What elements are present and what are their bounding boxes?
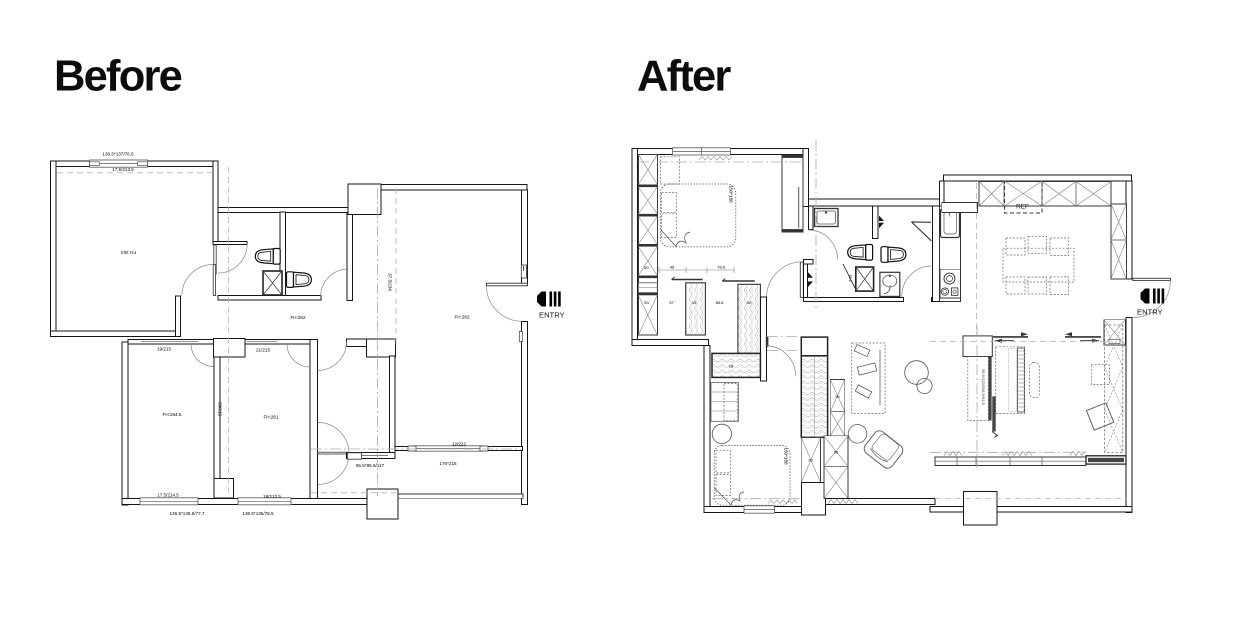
svg-text:30: 30 [835,395,839,399]
svg-text:18: 18 [729,364,734,369]
svg-text:20/215: 20/215 [218,402,223,416]
svg-text:78.8: 78.8 [717,265,726,270]
svg-text:48: 48 [670,265,675,270]
svg-text:50: 50 [747,300,752,305]
svg-text:65.5*95.5/117: 65.5*95.5/117 [356,463,385,468]
svg-text:21/215: 21/215 [256,348,270,353]
svg-text:136.5*136.5/77.7: 136.5*136.5/77.7 [170,511,205,516]
svg-text:136.5*135/78.5: 136.5*135/78.5 [242,511,274,516]
svg-text:150*186: 150*186 [729,185,734,203]
svg-text:76.6: 76.6 [848,274,852,281]
svg-text:45: 45 [692,300,697,305]
svg-text:12/222: 12/222 [452,441,466,446]
svg-text:Before: Before [54,53,182,101]
svg-text:17.5/214.5: 17.5/214.5 [157,492,179,497]
svg-text:95.5*120/208.5*91.5: 95.5*120/208.5*91.5 [981,369,986,404]
svg-text:18/213.5: 18/213.5 [263,494,281,499]
svg-text:After: After [637,53,731,101]
svg-text:67: 67 [669,300,674,305]
svg-text:85.8: 85.8 [716,300,725,305]
svg-text:FH:254.5: FH:254.5 [163,412,182,417]
svg-text:50: 50 [834,451,838,455]
svg-text:19/215: 19/215 [157,347,171,352]
svg-text:136.5*137/76.5: 136.5*137/76.5 [102,152,134,157]
svg-text:ENTRY: ENTRY [1137,308,1163,317]
svg-text:37.5/234: 37.5/234 [388,273,393,291]
svg-text:FH:262: FH:262 [454,315,470,320]
svg-text:150*188: 150*188 [784,447,789,465]
svg-text:20: 20 [808,458,813,463]
svg-text:176*216: 176*216 [439,461,457,466]
svg-text:17.5/213.5: 17.5/213.5 [112,167,134,172]
svg-text:FH:262: FH:262 [290,315,306,320]
svg-text:REF: REF [1016,204,1029,211]
svg-text:FH 253: FH 253 [121,250,137,255]
svg-text:FH:261: FH:261 [263,415,279,420]
svg-text:ENTRY: ENTRY [539,311,565,320]
svg-text:50: 50 [644,300,649,305]
svg-text:50: 50 [644,265,649,270]
